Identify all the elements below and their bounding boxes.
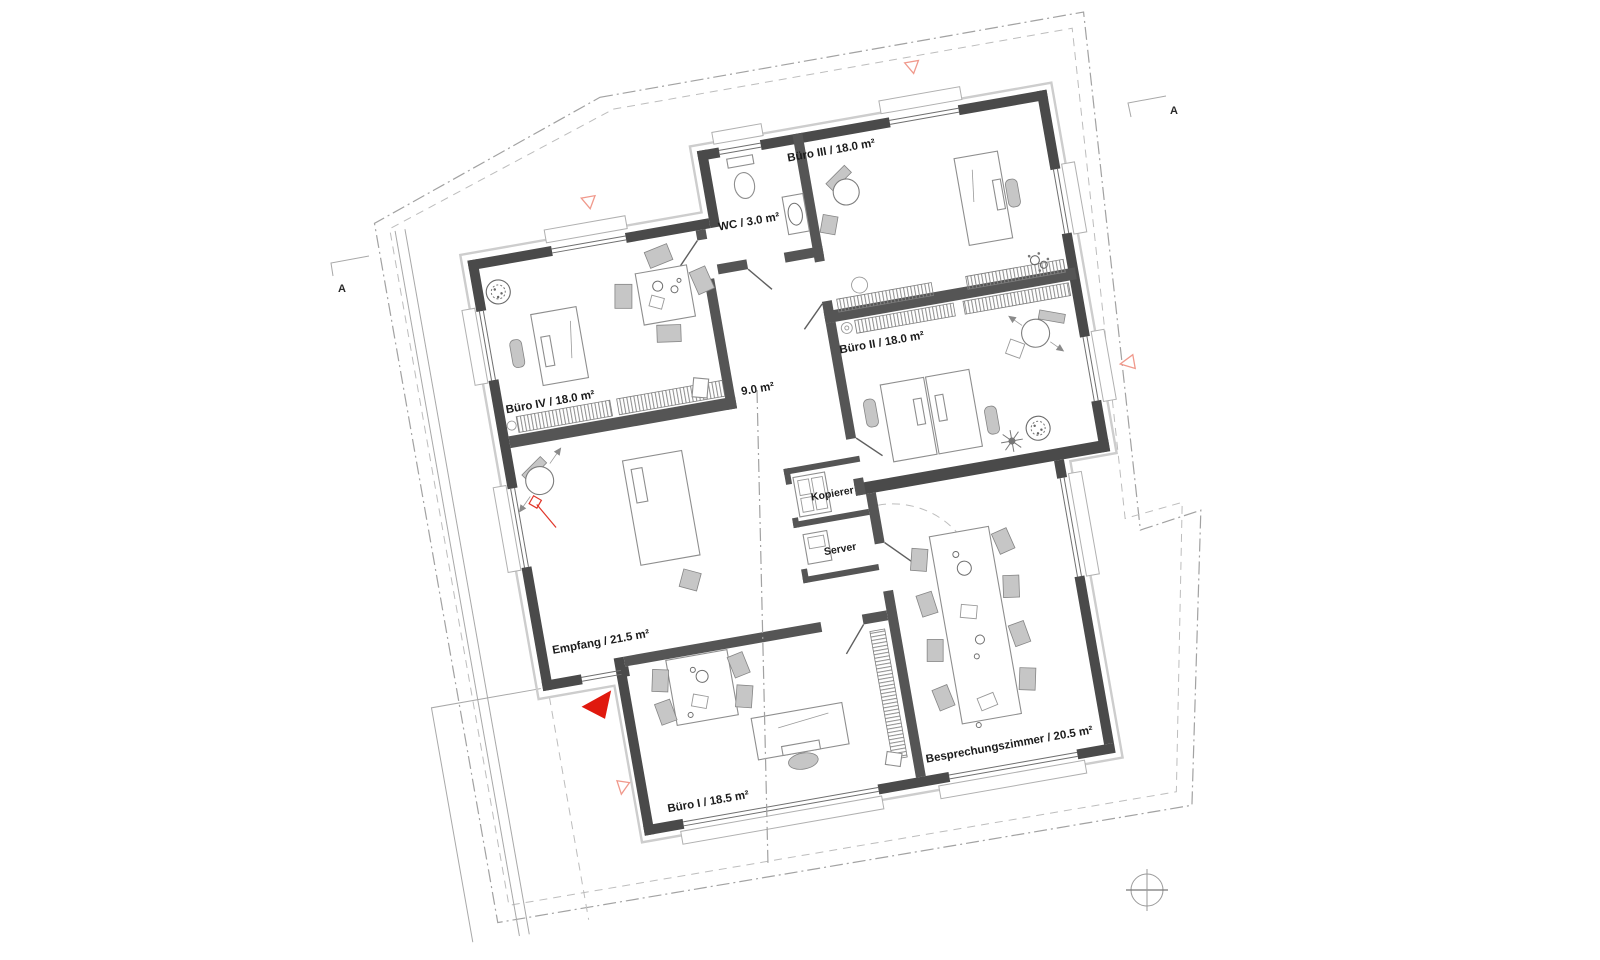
- rotated-plan: Büro III / 18.0 m² WC / 3.0 m² Büro II /…: [332, 7, 1253, 944]
- section-label: A: [338, 283, 346, 295]
- vent-triangle-icon: [617, 779, 631, 795]
- plant-icon: [484, 278, 512, 306]
- toilet-icon: [732, 171, 756, 200]
- meeting-table: [666, 650, 739, 726]
- section-marker-left: A: [331, 256, 369, 295]
- vent-triangle-icon: [581, 196, 597, 210]
- survey-point-icon: [1126, 869, 1168, 911]
- besprechung-furniture: [905, 522, 1044, 734]
- toilet-tank: [727, 155, 754, 168]
- plant-star-icon: [999, 428, 1024, 453]
- floor-plan-sheet: Büro III / 18.0 m² WC / 3.0 m² Büro II /…: [0, 0, 1600, 960]
- vent-triangle-icon: [905, 60, 921, 74]
- ridge-line: [757, 390, 768, 865]
- meeting-table: [635, 265, 695, 325]
- reception-desk: [622, 450, 699, 565]
- section-marker-top-right: A: [1128, 96, 1178, 117]
- room-label-wc: WC / 3.0 m²: [717, 211, 780, 234]
- camera-marker: [528, 493, 556, 531]
- entrance-arrow-icon: [580, 690, 616, 722]
- floor-plan-svg: Büro III / 18.0 m² WC / 3.0 m² Büro II /…: [0, 0, 1600, 960]
- room-label-buero1: Büro I / 18.5 m²: [667, 789, 750, 815]
- room-label-buero2: Büro II / 18.0 m²: [839, 330, 926, 357]
- room-label-besprechung: Besprechungszimmer / 20.5 m²: [925, 724, 1094, 765]
- room-label-flur: 9.0 m²: [740, 381, 775, 399]
- empfang-furniture: [509, 427, 706, 619]
- plant-icon: [1024, 414, 1052, 442]
- room-label-empfang: Empfang / 21.5 m²: [551, 628, 650, 657]
- section-label: A: [1170, 105, 1178, 117]
- desk: [531, 307, 589, 386]
